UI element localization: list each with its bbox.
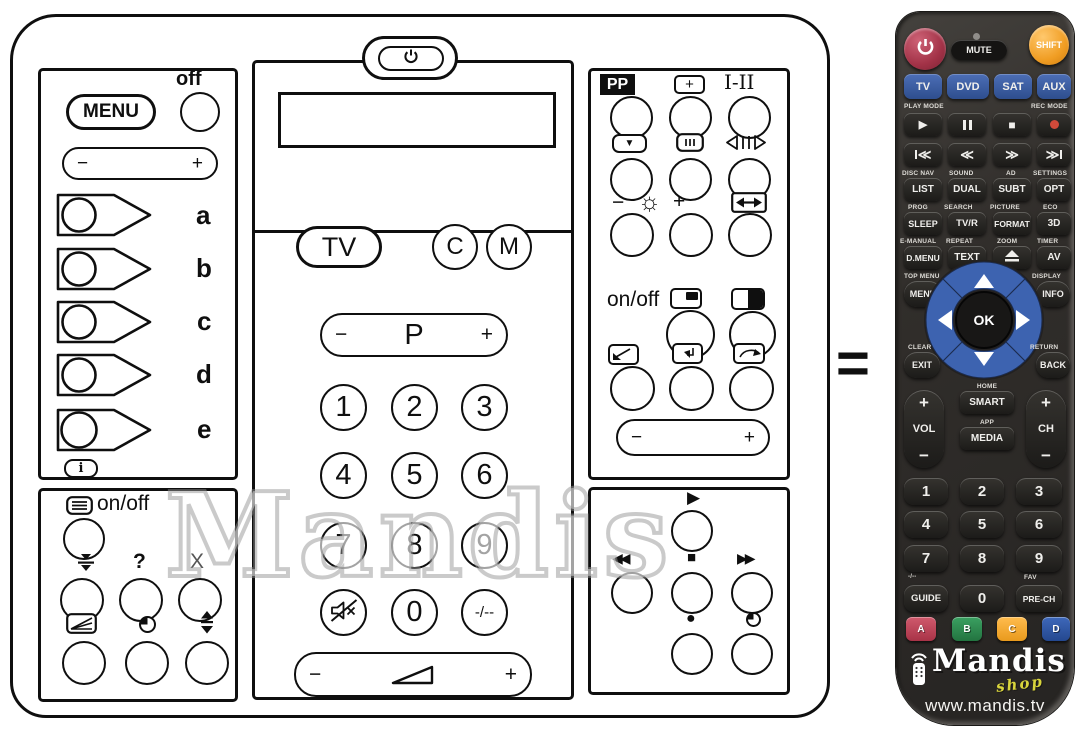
left-adjust-rocker[interactable]: − +: [62, 147, 218, 180]
c-button[interactable]: C: [432, 224, 478, 270]
c-label: C: [446, 233, 463, 261]
record-button[interactable]: [1037, 113, 1071, 136]
digit-8-button[interactable]: 8: [960, 545, 1004, 572]
brightness-minus-button[interactable]: [610, 213, 654, 257]
skip-back-icon: ≪: [918, 147, 932, 163]
return-label: RETURN: [1030, 344, 1058, 351]
zoom-label: ZOOM: [997, 238, 1017, 245]
key-c-button[interactable]: [54, 299, 154, 350]
power-button[interactable]: [378, 46, 444, 71]
bars-icon: [676, 133, 704, 157]
pause-icon: [963, 120, 966, 130]
digit-8-button[interactable]: 8: [391, 522, 438, 569]
rewind-button[interactable]: [611, 572, 653, 614]
device-tv-button[interactable]: TV: [904, 74, 942, 99]
back-button[interactable]: BACK: [1036, 352, 1070, 378]
digit-3-button[interactable]: 3: [1016, 478, 1062, 505]
subt-button[interactable]: SUBT: [993, 178, 1031, 201]
key-b-label: b: [196, 253, 212, 284]
help-button[interactable]: [119, 578, 163, 622]
menu-button[interactable]: MENU: [66, 94, 156, 130]
repeat-label: REPEAT: [946, 238, 973, 245]
format-button[interactable]: [728, 213, 772, 257]
dashes-label: -/--: [908, 574, 916, 580]
forward-button[interactable]: [731, 572, 773, 614]
digit-7-button[interactable]: 7: [904, 545, 948, 572]
pip-swap-button[interactable]: [729, 366, 774, 411]
key-e-label: e: [197, 414, 211, 445]
timer-record-icon: [746, 612, 761, 627]
digit-label: 5: [406, 459, 422, 492]
forward-icon: ≫: [1005, 147, 1019, 163]
pip-icon: [670, 288, 702, 309]
play-icon: ▶: [919, 118, 927, 131]
stop-icon: ■: [1008, 118, 1015, 132]
sound-label: SOUND: [949, 170, 973, 177]
website-url: www.mandis.tv: [896, 696, 1074, 716]
stop-button[interactable]: ■: [993, 113, 1031, 136]
pause-button[interactable]: [948, 113, 986, 136]
device-aux-button[interactable]: AUX: [1037, 74, 1071, 99]
tvr-button[interactable]: TV/R: [948, 212, 986, 235]
dual-button[interactable]: DUAL: [948, 178, 986, 201]
pip-half-icon: [731, 288, 765, 310]
digit-0-button[interactable]: 0: [960, 585, 1004, 612]
smart-button[interactable]: SMART: [960, 391, 1014, 414]
size-icon: [724, 133, 768, 157]
pip-plus-label: +: [744, 427, 755, 449]
pip-swap-icon: [733, 343, 765, 364]
digit-label: 2: [406, 391, 422, 424]
mute-button[interactable]: MUTE: [951, 40, 1007, 60]
forward-button[interactable]: ≫: [993, 143, 1031, 166]
timer-record-button[interactable]: [731, 633, 773, 675]
digit-2-button[interactable]: 2: [391, 384, 438, 431]
pip-inset: [686, 292, 698, 300]
plus-box-label: +: [685, 76, 694, 93]
cancel-icon: X: [190, 550, 204, 574]
tv-label: TV: [322, 232, 357, 263]
pip-source-icon: [672, 343, 703, 364]
play-button[interactable]: ▶: [904, 113, 942, 136]
prech-button[interactable]: PRE-CH: [1016, 585, 1062, 612]
program-rocker[interactable]: − P +: [320, 313, 508, 357]
device-dvd-button[interactable]: DVD: [947, 74, 989, 99]
skip-forward-button[interactable]: ≫: [1037, 143, 1071, 166]
home-label: HOME: [960, 383, 1014, 390]
app-label: APP: [960, 419, 1014, 426]
pip-minus-label: −: [631, 427, 642, 449]
plus-label: +: [192, 153, 203, 175]
eco-label: ECO: [1043, 204, 1058, 211]
ok-button[interactable]: OK: [974, 312, 995, 328]
replacement-remote: MUTE SHIFT TV DVD SAT AUX PLAY MODE REC …: [896, 12, 1074, 725]
digit-9-button[interactable]: 9: [1016, 545, 1062, 572]
key-c-label: c: [197, 306, 211, 337]
digit-9-button[interactable]: 9: [461, 522, 508, 569]
key-b-button[interactable]: [54, 246, 154, 297]
brightness-plus-button[interactable]: [669, 213, 713, 257]
alt-channel-label: -/--: [475, 604, 494, 621]
forward-icon: ▶▶: [737, 550, 753, 567]
power-button[interactable]: [904, 28, 946, 70]
ch-label: CH: [1038, 423, 1054, 435]
play-mode-label: PLAY MODE: [904, 103, 944, 110]
key-d-button[interactable]: [54, 352, 154, 403]
skip-forward-icon: ≫: [1046, 147, 1060, 163]
picture-button[interactable]: [62, 641, 106, 685]
volume-icon: [296, 664, 530, 686]
blue-d-button[interactable]: D: [1042, 617, 1070, 641]
digit-label: 0: [406, 596, 422, 629]
digit-label: 1: [335, 391, 351, 424]
off-label: off: [176, 68, 202, 91]
green-b-button[interactable]: B: [952, 617, 982, 641]
exit-button[interactable]: EXIT: [904, 352, 940, 378]
mute-icon: [329, 598, 359, 628]
digit-7-button[interactable]: 7: [320, 522, 367, 569]
yellow-c-button[interactable]: C: [997, 617, 1027, 641]
opt-button[interactable]: OPT: [1037, 178, 1071, 201]
power-icon: [403, 48, 419, 70]
still-label: ▼: [625, 138, 635, 149]
picture-icon: [66, 613, 97, 639]
still-icon: ▼: [612, 134, 647, 153]
stop-icon: ■: [687, 549, 696, 566]
media-button[interactable]: MEDIA: [960, 427, 1014, 450]
vol-plus-label: +: [919, 394, 929, 411]
vol-minus-label: −: [919, 447, 929, 464]
settings-label: SETTINGS: [1033, 170, 1067, 177]
off-button[interactable]: [180, 92, 220, 132]
mute-button[interactable]: [320, 589, 367, 636]
brightness-icon: ☼: [638, 188, 661, 217]
prog-label: PROG: [908, 204, 928, 211]
record-icon: ●: [686, 610, 696, 628]
equals-sign: =: [836, 330, 870, 397]
dpad[interactable]: OK: [922, 258, 1046, 387]
play-icon: ▶: [687, 488, 700, 508]
digit-label: 6: [476, 459, 492, 492]
digit-2-button[interactable]: 2: [960, 478, 1004, 505]
vol-label: VOL: [913, 423, 936, 435]
program-label: P: [322, 319, 506, 352]
teletext-icon: [66, 496, 93, 520]
info-label: i: [79, 461, 84, 476]
pip-adjust-rocker[interactable]: − +: [616, 419, 770, 456]
e-manual-label: E-MANUAL: [900, 238, 936, 245]
digit-3-button[interactable]: 3: [461, 384, 508, 431]
contrast-button[interactable]: [125, 641, 169, 685]
pip-onoff-label: on/off: [607, 288, 659, 312]
volume-rocker[interactable]: + VOL −: [904, 390, 944, 468]
digit-label: 3: [476, 391, 492, 424]
digit-6-button[interactable]: 6: [1016, 511, 1062, 538]
display-window: [278, 92, 556, 148]
brightness-minus-label: −: [612, 191, 624, 215]
clear-label: CLEAR: [908, 344, 931, 351]
record-icon: [1050, 120, 1059, 129]
record-button[interactable]: [671, 633, 713, 675]
shift-button[interactable]: SHIFT: [1029, 25, 1069, 65]
m-button[interactable]: M: [486, 224, 532, 270]
device-sat-button[interactable]: SAT: [994, 74, 1032, 99]
remote-logo-icon: [908, 647, 930, 692]
rewind-icon: ≪: [960, 147, 974, 163]
plus-box-icon: +: [674, 75, 705, 94]
timer-label: TIMER: [1037, 238, 1058, 245]
play-button[interactable]: [671, 510, 713, 552]
key-a-label: a: [196, 200, 210, 231]
digit-4-button[interactable]: 4: [320, 452, 367, 499]
update-icon: [77, 552, 95, 579]
digit-label: 4: [335, 459, 351, 492]
menu-label: MENU: [83, 101, 139, 123]
updown-icon: [200, 610, 214, 640]
rewind-button[interactable]: ≪: [948, 143, 986, 166]
m-label: M: [499, 233, 519, 261]
power-icon: [916, 37, 935, 62]
comparison-image: off MENU − + a b c d e i on/off ? X TV C…: [0, 0, 1077, 730]
updown-button[interactable]: [185, 641, 229, 685]
search-label: SEARCH: [944, 204, 973, 211]
tv-button[interactable]: TV: [296, 226, 382, 268]
pp-icon: PP: [600, 74, 635, 95]
pip-source-button[interactable]: [669, 366, 714, 411]
text-onoff-label: on/off: [97, 492, 149, 516]
digit-5-button[interactable]: 5: [391, 452, 438, 499]
contrast-icon: [139, 616, 156, 633]
rewind-icon: ◀◀: [612, 550, 628, 567]
led-indicator: [973, 33, 980, 40]
digit-label: 7: [335, 529, 351, 562]
info-icon: i: [64, 459, 98, 478]
pp-button[interactable]: [610, 96, 653, 139]
ad-label: AD: [1006, 170, 1016, 177]
pip-move-icon: [608, 344, 639, 365]
stop-button[interactable]: [671, 572, 713, 614]
digit-6-button[interactable]: 6: [461, 452, 508, 499]
brightness-plus-label: +: [673, 190, 685, 214]
threed-button[interactable]: 3D: [1037, 212, 1071, 235]
disc-nav-label: DISC NAV: [902, 170, 934, 177]
pip-move-button[interactable]: [610, 366, 655, 411]
list-button[interactable]: LIST: [904, 178, 942, 201]
digit-label: 9: [476, 529, 492, 562]
channel-rocker[interactable]: + CH −: [1026, 390, 1066, 468]
rec-mode-label: REC MODE: [1031, 103, 1068, 110]
help-icon: ?: [133, 550, 146, 574]
digit-5-button[interactable]: 5: [960, 511, 1004, 538]
pip-half-inset: [748, 290, 763, 310]
format-button[interactable]: FORMAT: [993, 212, 1031, 235]
brand-logo: Mandis: [932, 643, 1066, 679]
picture-label: PICTURE: [990, 204, 1020, 211]
key-a-button[interactable]: [54, 192, 154, 243]
fav-label: FAV: [1024, 574, 1037, 581]
alt-channel-button[interactable]: -/--: [461, 589, 508, 636]
digit-0-button[interactable]: 0: [391, 589, 438, 636]
key-d-label: d: [196, 359, 212, 390]
key-e-button[interactable]: [54, 407, 154, 458]
skip-back-button[interactable]: ≪: [904, 143, 942, 166]
digit-1-button[interactable]: 1: [904, 478, 948, 505]
volume-rocker[interactable]: − +: [294, 652, 532, 697]
sleep-button[interactable]: SLEEP: [904, 212, 942, 235]
guide-button[interactable]: GUIDE: [904, 585, 948, 612]
minus-label: −: [77, 153, 88, 175]
digit-label: 8: [406, 529, 422, 562]
digit-4-button[interactable]: 4: [904, 511, 948, 538]
digit-1-button[interactable]: 1: [320, 384, 367, 431]
red-a-button[interactable]: A: [906, 617, 936, 641]
ch-minus-label: −: [1041, 447, 1051, 464]
dual-sound-icon: I-II: [724, 70, 754, 94]
ch-plus-label: +: [1041, 394, 1051, 411]
